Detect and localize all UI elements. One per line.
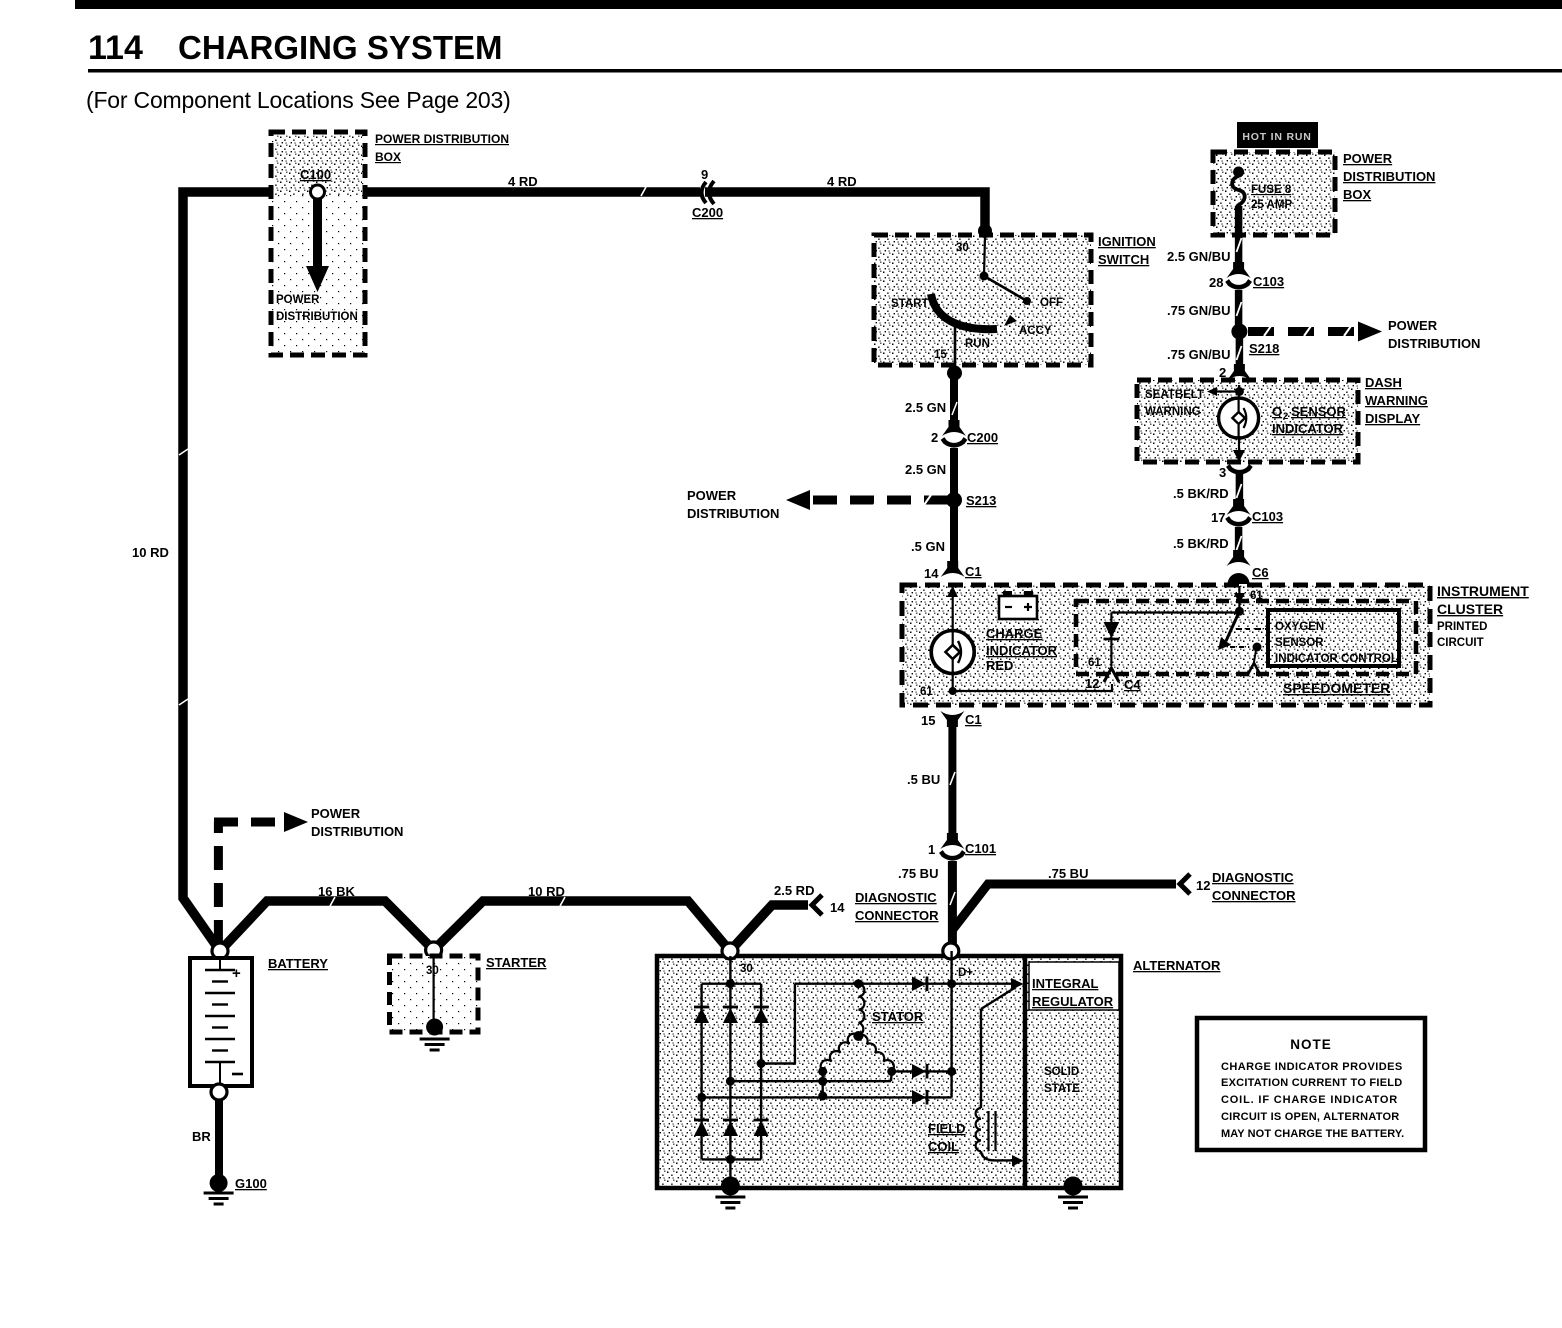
svg-text:.75 BU: .75 BU — [1048, 866, 1088, 881]
svg-text:INDICATOR: INDICATOR — [986, 643, 1058, 658]
svg-text:RUN: RUN — [965, 338, 990, 350]
svg-text:O: O — [1272, 404, 1282, 419]
svg-text:C1: C1 — [965, 564, 982, 579]
svg-text:DISTRIBUTION: DISTRIBUTION — [687, 506, 779, 521]
svg-text:DISTRIBUTION: DISTRIBUTION — [276, 311, 358, 323]
svg-text:15: 15 — [921, 713, 935, 728]
svg-text:MAY NOT CHARGE THE BATTERY.: MAY NOT CHARGE THE BATTERY. — [1221, 1128, 1404, 1140]
svg-text:1: 1 — [928, 842, 935, 857]
svg-text:ACCY: ACCY — [1019, 325, 1052, 337]
svg-text:SENSOR: SENSOR — [1291, 404, 1347, 419]
svg-text:BOX: BOX — [1343, 187, 1372, 202]
svg-text:30: 30 — [426, 965, 439, 977]
svg-text:25 AMP: 25 AMP — [1251, 199, 1292, 211]
svg-text:FIELD: FIELD — [928, 1121, 966, 1136]
svg-text:FUSE 8: FUSE 8 — [1251, 184, 1292, 196]
svg-text:POWER: POWER — [1343, 151, 1393, 166]
svg-text:NOTE: NOTE — [1290, 1037, 1332, 1052]
svg-text:DISTRIBUTION: DISTRIBUTION — [311, 824, 403, 839]
svg-text:S213: S213 — [966, 493, 996, 508]
svg-text:INTEGRAL: INTEGRAL — [1032, 976, 1099, 991]
svg-text:CIRCUIT: CIRCUIT — [1437, 637, 1484, 649]
svg-text:EXCITATION CURRENT TO FIELD: EXCITATION CURRENT TO FIELD — [1221, 1077, 1402, 1089]
svg-text:DISTRIBUTION: DISTRIBUTION — [1388, 336, 1480, 351]
svg-text:INSTRUMENT: INSTRUMENT — [1437, 583, 1529, 599]
svg-text:BOX: BOX — [375, 150, 401, 164]
svg-text:SENSOR: SENSOR — [1275, 637, 1324, 649]
svg-text:POWER: POWER — [311, 806, 361, 821]
svg-text:114: 114 — [88, 29, 143, 67]
svg-text:IGNITION: IGNITION — [1098, 234, 1156, 249]
svg-text:9: 9 — [701, 167, 708, 182]
svg-text:SOLID: SOLID — [1044, 1066, 1079, 1078]
svg-text:2.5 GN: 2.5 GN — [905, 400, 946, 415]
svg-text:OXYGEN: OXYGEN — [1275, 621, 1324, 633]
svg-text:C101: C101 — [965, 841, 996, 856]
svg-text:INDICATOR: INDICATOR — [1272, 421, 1344, 436]
svg-text:10 RD: 10 RD — [132, 545, 169, 560]
svg-text:S218: S218 — [1249, 341, 1279, 356]
svg-text:12: 12 — [1196, 878, 1210, 893]
svg-text:STATOR: STATOR — [872, 1009, 924, 1024]
svg-text:CHARGING SYSTEM: CHARGING SYSTEM — [178, 29, 503, 66]
svg-text:2.5 RD: 2.5 RD — [774, 883, 814, 898]
svg-text:BR: BR — [192, 1129, 211, 1144]
svg-text:.75 GN/BU: .75 GN/BU — [1167, 303, 1231, 318]
svg-text:COIL. IF CHARGE INDICATOR: COIL. IF CHARGE INDICATOR — [1221, 1094, 1397, 1106]
svg-text:D+: D+ — [958, 967, 973, 979]
svg-text:WARNING: WARNING — [1145, 406, 1201, 418]
svg-text:C1: C1 — [965, 712, 982, 727]
svg-text:HOT IN RUN: HOT IN RUN — [1242, 131, 1311, 143]
svg-text:.75 GN/BU: .75 GN/BU — [1167, 347, 1231, 362]
svg-text:SWITCH: SWITCH — [1098, 252, 1149, 267]
svg-text:CONNECTOR: CONNECTOR — [855, 908, 939, 923]
svg-text:61: 61 — [1088, 657, 1101, 669]
svg-text:2.5 GN: 2.5 GN — [905, 462, 946, 477]
svg-text:.5 BK/RD: .5 BK/RD — [1173, 486, 1229, 501]
svg-text:17: 17 — [1211, 510, 1225, 525]
svg-text:3: 3 — [1219, 465, 1226, 480]
svg-text:C100: C100 — [300, 167, 331, 182]
svg-text:C103: C103 — [1253, 274, 1284, 289]
svg-text:POWER: POWER — [276, 294, 320, 306]
svg-text:28: 28 — [1209, 275, 1223, 290]
svg-text:C6: C6 — [1252, 565, 1269, 580]
svg-text:C103: C103 — [1252, 509, 1283, 524]
svg-text:4 RD: 4 RD — [508, 174, 538, 189]
svg-text:61: 61 — [920, 686, 933, 698]
svg-text:SEATBELT: SEATBELT — [1145, 389, 1204, 401]
svg-text:CIRCUIT IS OPEN, ALTERNATOR: CIRCUIT IS OPEN, ALTERNATOR — [1221, 1111, 1399, 1123]
svg-text:C200: C200 — [692, 205, 723, 220]
svg-text:2.5 GN/BU: 2.5 GN/BU — [1167, 249, 1231, 264]
svg-text:PRINTED: PRINTED — [1437, 621, 1487, 633]
svg-text:14: 14 — [924, 566, 939, 581]
svg-text:SPEEDOMETER: SPEEDOMETER — [1283, 680, 1390, 696]
svg-text:STATE: STATE — [1044, 1083, 1080, 1095]
svg-text:CHARGE: CHARGE — [986, 626, 1043, 641]
svg-text:STARTER: STARTER — [486, 955, 547, 970]
svg-text:WARNING: WARNING — [1365, 393, 1428, 408]
svg-text:INDICATOR CONTROL: INDICATOR CONTROL — [1275, 653, 1398, 665]
svg-text:16 BK: 16 BK — [318, 884, 355, 899]
svg-text:CONNECTOR: CONNECTOR — [1212, 888, 1296, 903]
svg-text:START: START — [891, 298, 928, 310]
svg-text:DISPLAY: DISPLAY — [1365, 411, 1420, 426]
svg-text:.5 GN: .5 GN — [911, 539, 945, 554]
svg-text:DISTRIBUTION: DISTRIBUTION — [1343, 169, 1435, 184]
svg-text:REGULATOR: REGULATOR — [1032, 994, 1114, 1009]
svg-text:COIL: COIL — [928, 1139, 959, 1154]
svg-text:4 RD: 4 RD — [827, 174, 857, 189]
svg-text:14: 14 — [830, 900, 845, 915]
svg-text:.75 BU: .75 BU — [898, 866, 938, 881]
svg-text:POWER: POWER — [687, 488, 737, 503]
svg-text:G100: G100 — [235, 1176, 267, 1191]
svg-text:DIAGNOSTIC: DIAGNOSTIC — [855, 890, 937, 905]
svg-text:2: 2 — [931, 430, 938, 445]
svg-text:30: 30 — [740, 963, 753, 975]
svg-text:POWER: POWER — [1388, 318, 1438, 333]
svg-text:61: 61 — [1250, 590, 1263, 602]
svg-text:.5 BK/RD: .5 BK/RD — [1173, 536, 1229, 551]
svg-text:POWER DISTRIBUTION: POWER DISTRIBUTION — [375, 132, 509, 146]
svg-text:OFF: OFF — [1040, 297, 1063, 309]
svg-text:+: + — [232, 965, 241, 982]
svg-text:30: 30 — [956, 242, 969, 254]
svg-text:DASH: DASH — [1365, 375, 1402, 390]
svg-text:.5 BU: .5 BU — [907, 772, 940, 787]
svg-text:CHARGE INDICATOR PROVIDES: CHARGE INDICATOR PROVIDES — [1221, 1061, 1402, 1073]
svg-text:C200: C200 — [967, 430, 998, 445]
svg-text:C4: C4 — [1124, 677, 1141, 692]
svg-text:RED: RED — [986, 658, 1013, 673]
svg-text:BATTERY: BATTERY — [268, 956, 328, 971]
svg-text:15: 15 — [934, 349, 947, 361]
svg-text:DIAGNOSTIC: DIAGNOSTIC — [1212, 870, 1294, 885]
svg-text:ALTERNATOR: ALTERNATOR — [1133, 958, 1221, 973]
svg-text:10 RD: 10 RD — [528, 884, 565, 899]
svg-text:CLUSTER: CLUSTER — [1437, 601, 1503, 617]
svg-text:(For Component Locations See P: (For Component Locations See Page 203) — [86, 87, 511, 113]
svg-text:12: 12 — [1085, 676, 1099, 691]
